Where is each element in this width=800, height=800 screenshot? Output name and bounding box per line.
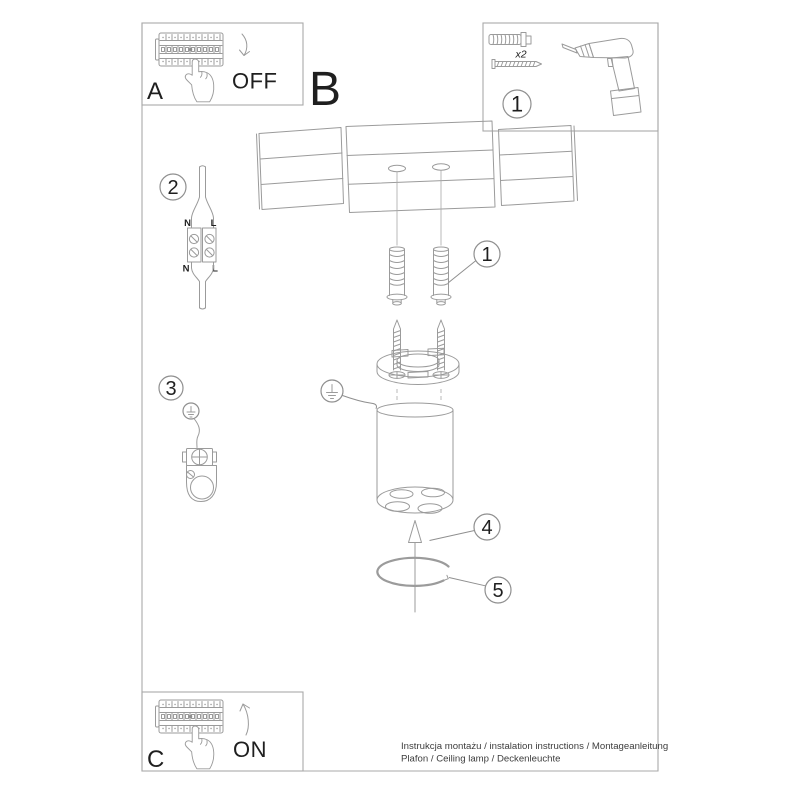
step-c-label: C <box>147 746 164 773</box>
callout-3-number: 3 <box>165 378 176 400</box>
step-b-label: B <box>309 63 341 116</box>
wire-label-n-top: N <box>184 218 191 229</box>
footer-line-1: Instrukcja montażu / instalation instruc… <box>401 741 668 752</box>
wire-label-l-top: L <box>211 218 217 229</box>
ground-symbol-small-icon <box>183 403 199 419</box>
instruction-sheet: A OFF B x2 1 <box>0 0 800 800</box>
callout-2-number: 2 <box>167 177 178 199</box>
page-background <box>0 0 800 800</box>
ground-symbol-icon <box>321 380 343 402</box>
tools-callout-number: 1 <box>511 92 523 117</box>
footer-line-2: Plafon / Ceiling lamp / Deckenleuchte <box>401 754 560 765</box>
callout-4-number: 4 <box>481 517 492 539</box>
quantity-label: x2 <box>514 49 526 61</box>
callout-5-number: 5 <box>492 580 503 602</box>
off-label: OFF <box>232 69 278 94</box>
on-label: ON <box>233 737 267 762</box>
wire-label-n-bottom: N <box>183 264 190 275</box>
step-a-label: A <box>147 78 163 105</box>
callout-1-number: 1 <box>481 244 492 266</box>
diagram-canvas: A OFF B x2 1 <box>0 0 800 800</box>
